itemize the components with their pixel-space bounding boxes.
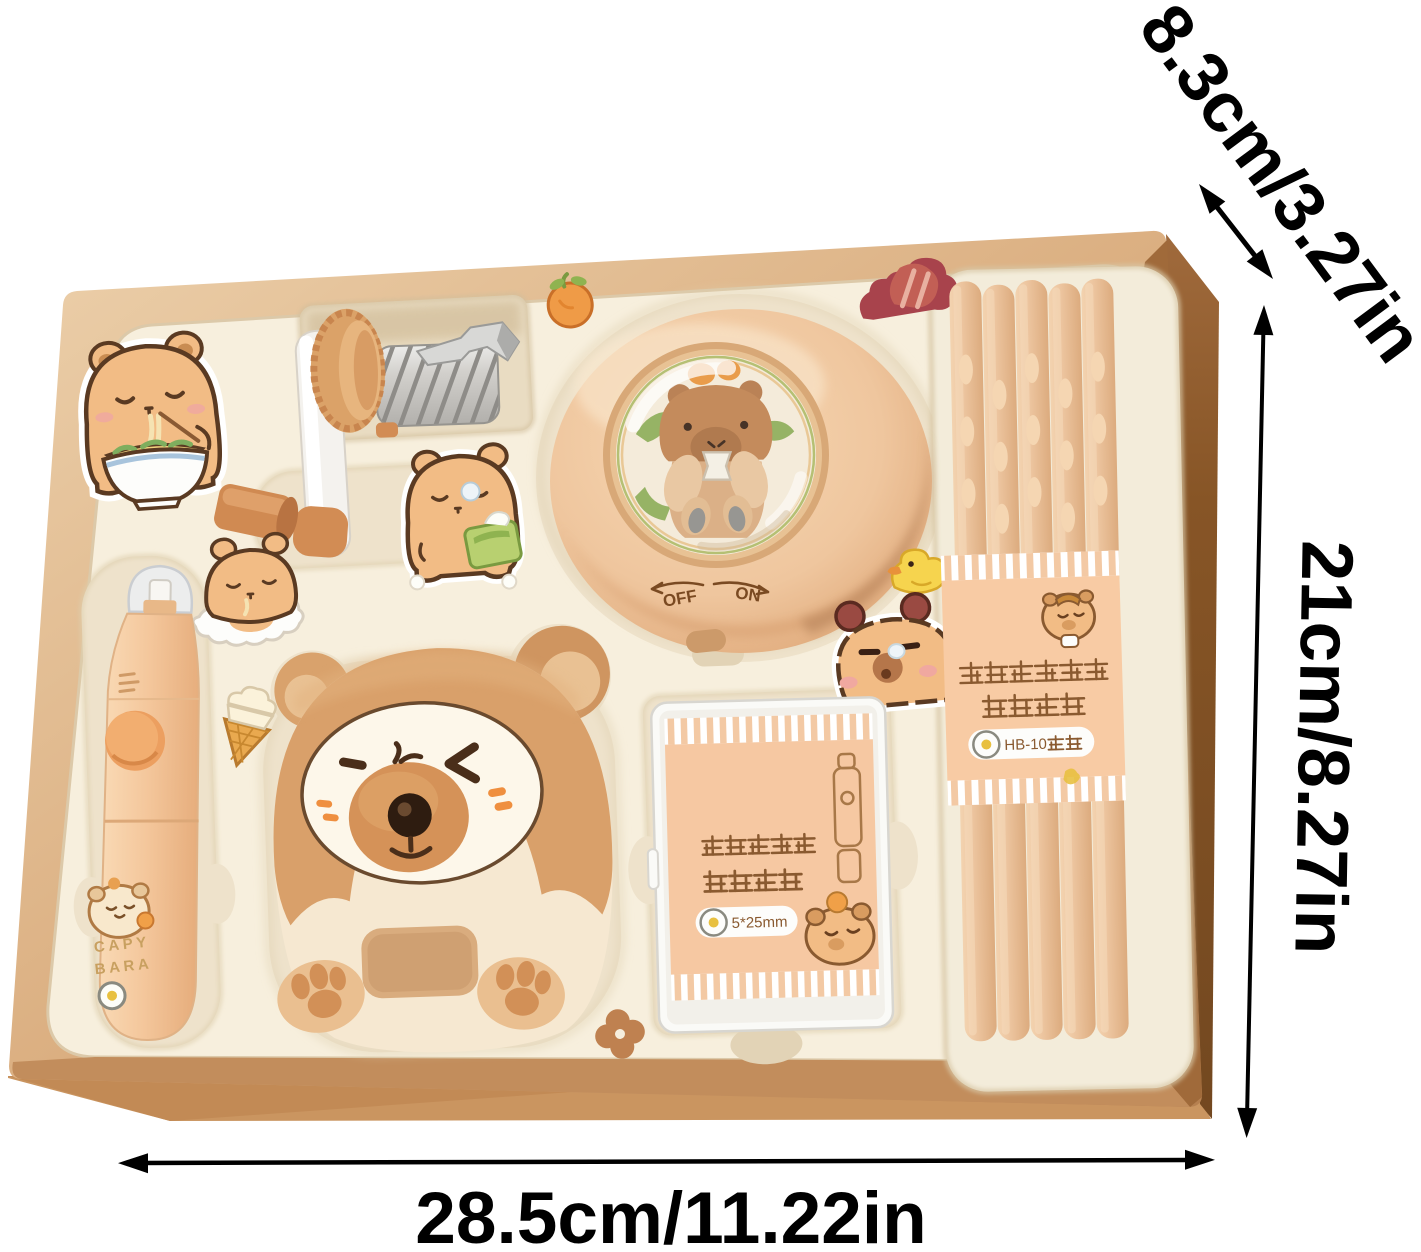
svg-text:HB-10: HB-10	[1004, 736, 1047, 754]
svg-text:5*25mm: 5*25mm	[731, 914, 787, 932]
svg-text:28.5cm/11.22in: 28.5cm/11.22in	[415, 1178, 926, 1247]
svg-text:21cm/8.27in: 21cm/8.27in	[1279, 540, 1367, 955]
